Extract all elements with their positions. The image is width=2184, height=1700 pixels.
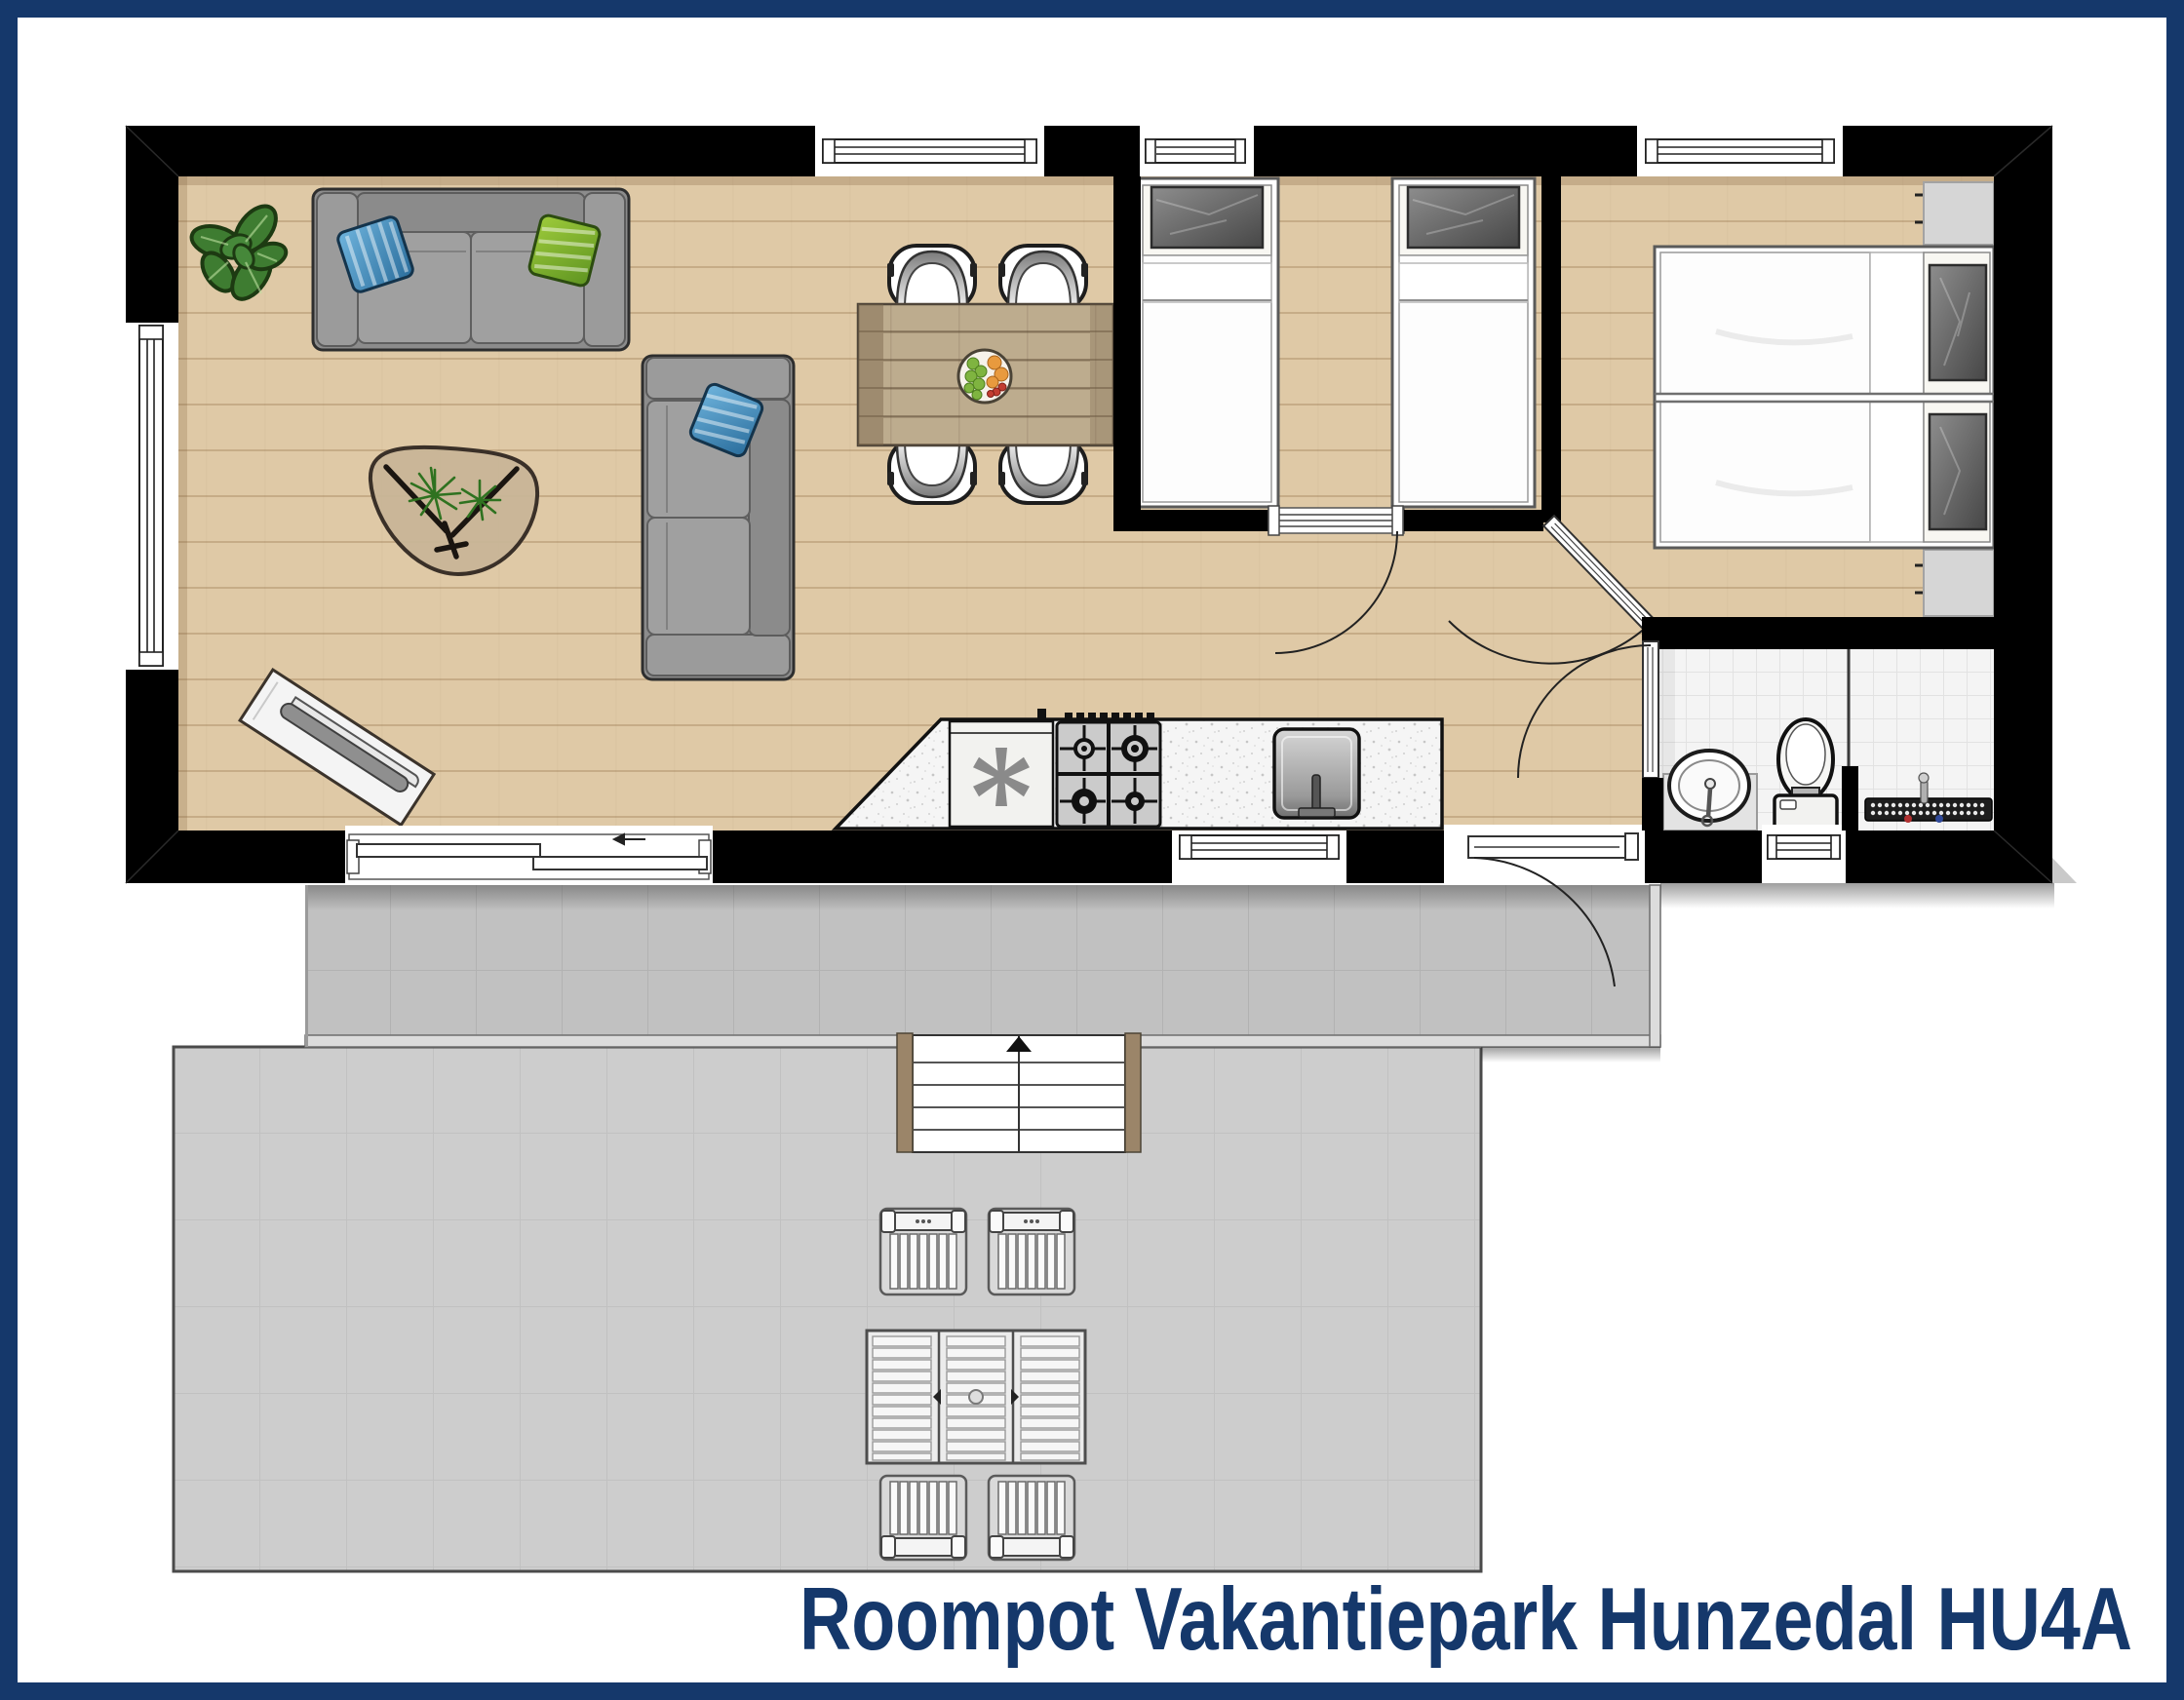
svg-text:Roompot Vakantiepark Hunzedal: Roompot Vakantiepark Hunzedal HU4A: [799, 1570, 2132, 1669]
